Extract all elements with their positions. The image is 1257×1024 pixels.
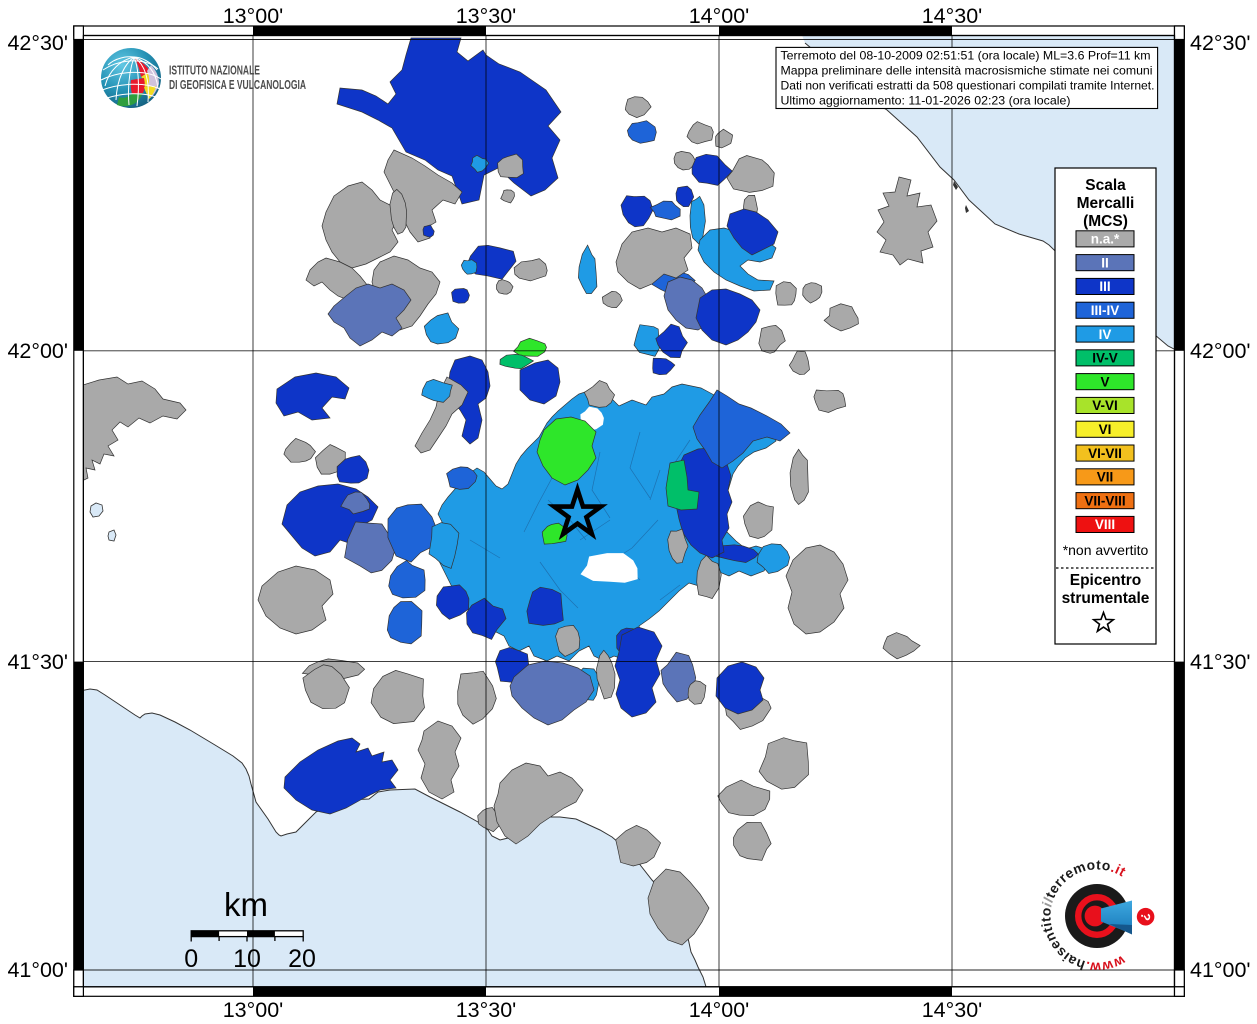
svg-text:10: 10 xyxy=(233,945,261,973)
svg-text:42°00': 42°00' xyxy=(7,339,68,363)
svg-text:(MCS): (MCS) xyxy=(1083,213,1128,230)
svg-text:42°30': 42°30' xyxy=(7,31,68,55)
svg-text:V: V xyxy=(1100,374,1109,389)
svg-text:VII-VIII: VII-VIII xyxy=(1084,493,1125,508)
svg-text:13°30': 13°30' xyxy=(456,998,517,1022)
svg-text:III-IV: III-IV xyxy=(1091,303,1120,318)
svg-text:III: III xyxy=(1099,279,1110,294)
svg-text:Epicentro: Epicentro xyxy=(1070,572,1141,589)
svg-text:Mercalli: Mercalli xyxy=(1077,195,1135,212)
svg-text:n.a.*: n.a.* xyxy=(1091,232,1120,247)
svg-text:IV-V: IV-V xyxy=(1092,351,1118,366)
svg-text:strumentale: strumentale xyxy=(1062,590,1150,607)
svg-text:Mappa preliminare delle intens: Mappa preliminare delle intensità macros… xyxy=(781,64,1153,78)
svg-text:VI-VII: VI-VII xyxy=(1088,446,1122,461)
svg-text:41°00': 41°00' xyxy=(7,958,68,982)
svg-text:41°30': 41°30' xyxy=(7,650,68,674)
svg-text:14°00': 14°00' xyxy=(689,4,750,28)
svg-text:VIII: VIII xyxy=(1095,517,1115,532)
svg-text:41°30': 41°30' xyxy=(1190,650,1251,674)
svg-text:13°30': 13°30' xyxy=(456,4,517,28)
svg-text:ISTITUTO NAZIONALE: ISTITUTO NAZIONALE xyxy=(169,64,260,78)
svg-text:km: km xyxy=(224,886,268,923)
svg-text:14°30': 14°30' xyxy=(922,4,983,28)
svg-text:Dati non verificati estratti d: Dati non verificati estratti da 508 ques… xyxy=(781,79,1155,93)
svg-text:II: II xyxy=(1101,255,1109,270)
svg-text:0: 0 xyxy=(184,945,198,973)
svg-text:VII: VII xyxy=(1097,470,1114,485)
svg-text:V-VI: V-VI xyxy=(1092,398,1118,413)
svg-text:13°00': 13°00' xyxy=(223,998,284,1022)
svg-text:14°00': 14°00' xyxy=(689,998,750,1022)
svg-text:*non avvertito: *non avvertito xyxy=(1063,542,1149,558)
svg-text:13°00': 13°00' xyxy=(223,4,284,28)
svg-text:VI: VI xyxy=(1099,422,1112,437)
svg-text:Scala: Scala xyxy=(1085,177,1126,194)
svg-text:41°00': 41°00' xyxy=(1190,958,1251,982)
svg-text:42°00': 42°00' xyxy=(1190,339,1251,363)
svg-text:IV: IV xyxy=(1099,327,1112,342)
svg-text:20: 20 xyxy=(288,945,316,973)
svg-text:14°30': 14°30' xyxy=(922,998,983,1022)
svg-text:DI GEOFISICA E VULCANOLOGIA: DI GEOFISICA E VULCANOLOGIA xyxy=(169,78,306,92)
svg-text:42°30': 42°30' xyxy=(1190,31,1251,55)
svg-text:Terremoto del 08-10-2009 02:51: Terremoto del 08-10-2009 02:51:51 (ora l… xyxy=(781,49,1151,63)
svg-text:Ultimo aggiornamento: 11-01-20: Ultimo aggiornamento: 11-01-2026 02:23 (… xyxy=(781,94,1071,108)
